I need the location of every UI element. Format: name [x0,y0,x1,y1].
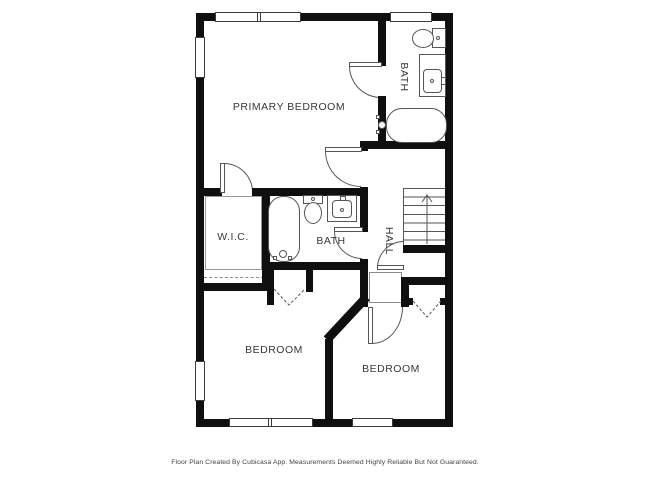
window-icon [229,418,313,427]
window-mullion [260,13,261,21]
toilet-bowl [412,29,434,48]
window-icon [195,361,205,401]
door-leaf [325,147,362,152]
room-label-bedroom-right: BEDROOM [362,363,420,375]
disclaimer-text: Floor Plan Created By Cubicasa App. Meas… [0,459,650,466]
room-label-wic: W.I.C. [217,231,249,243]
door-swing-icon [372,307,403,344]
door-leaf [349,62,382,67]
wall-bedroom-south-a [196,188,222,196]
room-label-bath-middle: BATH [316,235,345,247]
closet-rod-line [204,277,264,278]
wall-wic-south [196,283,270,291]
sink-faucet [441,77,446,85]
door-leaf [220,163,225,193]
door-swing-icon [349,66,381,98]
bifold-door-icon [410,299,446,320]
wall-bedroom-divider [325,339,333,419]
bifold-door-icon [272,287,308,308]
window-icon [215,12,301,22]
doorway-threshold [369,272,402,303]
window-icon [195,37,205,78]
sink-drain [430,79,434,83]
wall-upper-bath-west-a [378,18,386,66]
door-swing-icon [224,163,253,192]
bathtub-faucet [279,250,287,258]
stairs-direction-arrow [417,189,437,247]
window-mullion [268,419,269,426]
room-label-hall: HALL [383,227,395,255]
bathtub-basin [386,108,447,143]
room-label-primary-bedroom: PRIMARY BEDROOM [233,101,345,113]
door-swing-icon [325,151,361,187]
floor-plan: PRIMARY BEDROOM BATH W.I.C. BATH HALL BE… [0,0,650,488]
bathtub-handle [376,130,380,134]
bathtub-handle [288,256,292,260]
wall-diagonal [324,294,370,343]
bathtub-handle [376,115,380,119]
wall-bath-south [262,262,364,270]
wall-outer-right [445,13,453,427]
window-mullion [257,13,258,21]
bathtub-handle [273,256,277,260]
door-leaf [368,307,373,344]
door-leaf [334,227,363,232]
window-icon [390,12,432,22]
wall-under-stairs-2 [403,277,445,285]
room-label-bedroom-left: BEDROOM [245,344,303,356]
toilet-bowl [304,202,322,224]
room-label-bath-upper: BATH [398,62,410,91]
toilet-flush-button [311,197,315,201]
window-mullion [271,419,272,426]
door-leaf [377,265,404,270]
window-icon [352,418,393,427]
sink-drain [340,208,344,212]
toilet-flush-button [436,36,440,40]
bathtub-faucet [378,121,386,129]
